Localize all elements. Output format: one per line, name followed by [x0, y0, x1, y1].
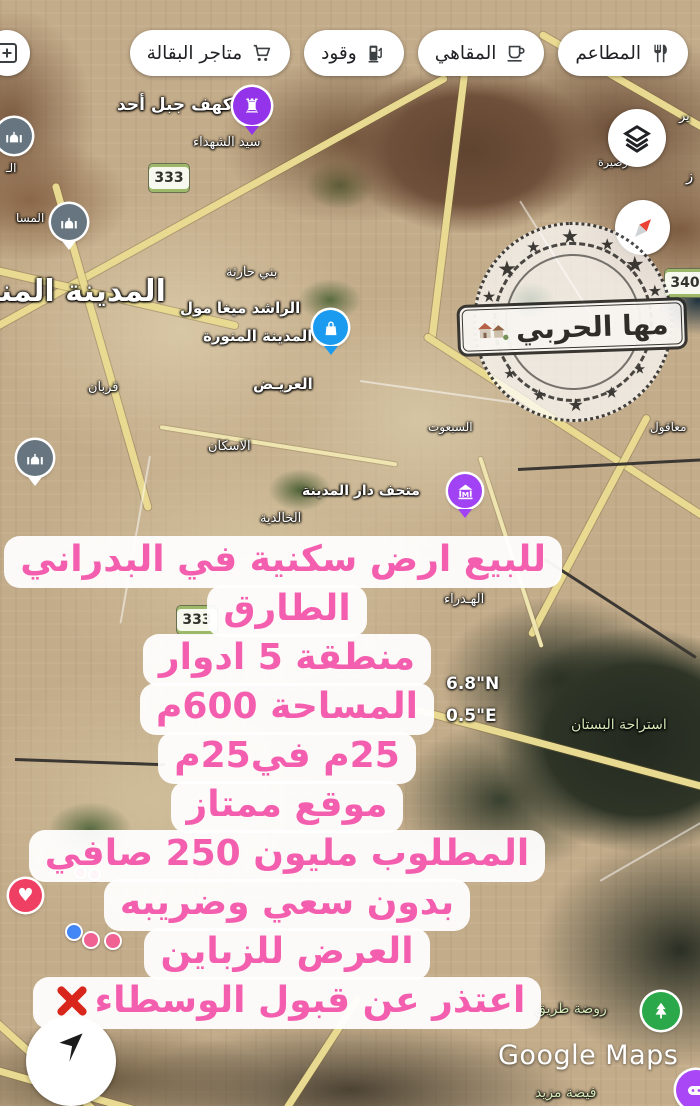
mosque-icon — [3, 125, 25, 147]
railway-line — [518, 458, 700, 470]
category-chips-bar: المطاعم المقاهي وقود متاجر البقالة — [0, 30, 700, 76]
x-mark-icon — [55, 984, 89, 1018]
map-label: الاسكان — [208, 439, 251, 454]
road-line — [428, 45, 471, 340]
map-label: متحف دار المدينة — [302, 483, 420, 499]
listing-announcement: للبيع ارض سكنية في البدرانيالطارقمنطقة 5… — [12, 536, 562, 1026]
listing-line-text: العرض للزباين — [160, 931, 413, 972]
star-icon: ★ — [604, 384, 619, 400]
chip-add-partial[interactable] — [0, 30, 30, 76]
svg-text:M: M — [461, 489, 468, 498]
listing-line: موقع ممتاز — [171, 781, 404, 833]
layers-button[interactable] — [608, 109, 666, 167]
listing-line-text: للبيع ارض سكنية في البدراني — [20, 539, 546, 580]
attraction-pin[interactable] — [676, 1070, 700, 1106]
listing-row: 25م في25م — [12, 732, 562, 781]
stamp-banner: مها الحربي — [456, 297, 688, 357]
mosque-pin[interactable] — [51, 204, 87, 240]
listing-line-text: 25م في25م — [174, 735, 400, 776]
restaurant-icon — [650, 43, 671, 64]
map-label: المدينة المنورة — [203, 327, 312, 345]
fuel-icon — [366, 43, 387, 64]
google-maps-screen: كهف جبل أحدسيد الشهداءبني حارثةالراشد مي… — [0, 0, 700, 1106]
star-icon: ★ — [532, 387, 547, 403]
map-label: قربان — [88, 380, 119, 395]
listing-line-text: منطقة 5 ادوار — [159, 637, 415, 678]
tree-icon — [650, 1000, 672, 1022]
star-icon: ★ — [526, 239, 541, 255]
listing-row: الطارق — [12, 585, 562, 634]
listing-line-text: المطلوب مليون 250 صافي — [45, 833, 530, 874]
shopping-bag-icon — [321, 318, 341, 338]
star-icon: ★ — [497, 259, 517, 282]
railway-line — [544, 558, 696, 658]
add-icon — [0, 41, 19, 65]
houses-icon — [476, 317, 509, 342]
watermark-stamp: ★★★★★★★★★★★★ مها الحربي — [470, 219, 677, 426]
mosque-pin[interactable] — [17, 440, 53, 476]
star-icon: ★ — [633, 362, 646, 376]
listing-row: العرض للزباين — [12, 928, 562, 977]
listing-line-text: موقع ممتاز — [187, 784, 388, 825]
listing-line: للبيع ارض سكنية في البدراني — [4, 536, 562, 588]
gamepad-icon — [684, 1078, 700, 1102]
map-label: فيضة مزيد — [535, 1085, 596, 1101]
listing-line-text: المساحة 600م — [156, 686, 418, 727]
mosque-icon — [24, 447, 46, 469]
chip-grocery[interactable]: متاجر البقالة — [130, 30, 291, 76]
chip-fuel[interactable]: وقود — [304, 30, 404, 76]
museum-icon: M — [455, 481, 476, 502]
listing-line: المساحة 600م — [140, 683, 434, 735]
mall-pin[interactable] — [313, 310, 348, 345]
listing-row: بدون سعي وضريبه — [12, 879, 562, 928]
map-label: المدينة المنو — [0, 274, 166, 309]
navigate-arrow-icon — [50, 1026, 92, 1068]
park-tree-pin[interactable] — [642, 992, 680, 1030]
map-label: بني حارثة — [226, 265, 277, 280]
map-label: السبعوت — [428, 420, 473, 434]
listing-row: اعتذر عن قبول الوسطاء — [12, 977, 562, 1026]
castle-pin[interactable]: ♜ — [233, 87, 271, 125]
star-icon: ★ — [600, 237, 615, 253]
map-label: الخالدية — [260, 511, 301, 526]
google-maps-logo: Google Maps — [498, 1040, 678, 1071]
mosque-icon — [58, 211, 80, 233]
map-label: سيد الشهداء — [193, 135, 260, 150]
map-label: معاقول — [650, 420, 687, 434]
grocery-cart-icon — [251, 42, 273, 64]
star-icon: ★ — [482, 289, 497, 305]
street-line — [600, 815, 700, 882]
layers-icon — [622, 123, 652, 153]
route-number: 333 — [154, 171, 183, 185]
listing-line-text: الطارق — [223, 588, 350, 629]
navigate-arrow-button[interactable] — [26, 1016, 116, 1106]
chip-label: المقاهي — [435, 43, 497, 64]
map-label: العريـض — [253, 375, 313, 393]
listing-line: المطلوب مليون 250 صافي — [29, 830, 546, 882]
route-number: 340 — [670, 276, 699, 290]
stamp-owner-name: مها الحربي — [515, 307, 669, 345]
star-icon: ★ — [625, 254, 645, 277]
listing-row: المساحة 600م — [12, 683, 562, 732]
listing-line-text: بدون سعي وضريبه — [120, 882, 454, 923]
map-label: ير — [679, 109, 690, 124]
star-icon: ★ — [561, 226, 580, 247]
map-label: استراحة البستان — [571, 717, 667, 733]
listing-line: منطقة 5 ادوار — [143, 634, 431, 686]
star-icon: ★ — [503, 367, 516, 381]
map-label: الـ — [6, 161, 17, 175]
chip-restaurants[interactable]: المطاعم — [558, 30, 688, 76]
road-line — [160, 425, 398, 466]
map-label: المسا — [16, 211, 44, 225]
chip-cafes[interactable]: المقاهي — [418, 30, 545, 76]
chip-label: وقود — [321, 43, 357, 64]
star-icon: ★ — [568, 397, 585, 416]
listing-line: اعتذر عن قبول الوسطاء — [33, 977, 542, 1029]
listing-row: للبيع ارض سكنية في البدراني — [12, 536, 562, 585]
route-badge: 333 — [148, 163, 190, 193]
listing-line-text: اعتذر عن قبول الوسطاء — [95, 980, 526, 1021]
listing-row: منطقة 5 ادوار — [12, 634, 562, 683]
mosque-pin[interactable] — [0, 118, 32, 154]
map-label: ز — [686, 167, 693, 185]
museum-pin[interactable]: M — [448, 474, 482, 508]
map-label: الراشد ميغا مول — [180, 299, 300, 317]
chip-label: المطاعم — [575, 43, 641, 64]
listing-row: المطلوب مليون 250 صافي — [12, 830, 562, 879]
castle-icon: ♜ — [243, 96, 261, 116]
listing-line: 25م في25م — [158, 732, 416, 784]
listing-line: العرض للزباين — [144, 928, 429, 980]
cafe-icon — [505, 42, 527, 64]
chip-label: متاجر البقالة — [147, 43, 243, 64]
map-label: كهف جبل أحد — [117, 95, 232, 115]
listing-line: بدون سعي وضريبه — [104, 879, 470, 931]
star-icon: ★ — [648, 283, 663, 299]
listing-line: الطارق — [207, 585, 366, 637]
listing-row: موقع ممتاز — [12, 781, 562, 830]
